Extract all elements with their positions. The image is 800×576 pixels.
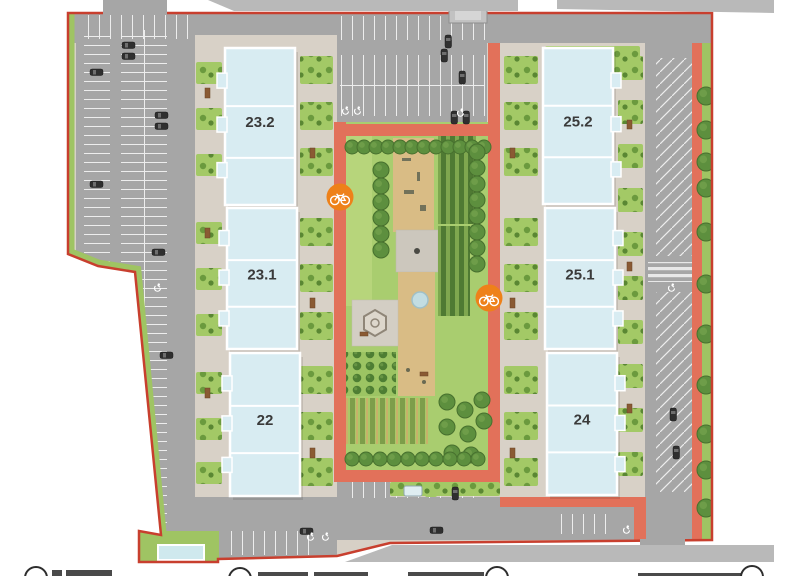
bench — [510, 298, 515, 308]
bush-patch — [300, 102, 333, 130]
parked-car — [90, 69, 103, 76]
legend-text-clipped — [66, 570, 112, 576]
bench — [310, 148, 315, 158]
tree-icon — [359, 452, 373, 466]
tree-icon — [469, 240, 485, 256]
tree-icon — [469, 144, 485, 160]
site-plan-canvas: 23.223.12225.225.124 — [0, 0, 800, 576]
building-entrance — [613, 270, 623, 285]
bench — [420, 372, 428, 376]
fitness-equipment — [422, 380, 426, 384]
building-entrance — [615, 376, 625, 391]
parked-car — [430, 527, 443, 534]
building-label: 23.1 — [247, 266, 276, 283]
building-entrance — [219, 311, 229, 326]
bush-patch — [196, 314, 222, 336]
park-left-lawn-strip — [346, 136, 372, 306]
parked-car — [155, 112, 168, 119]
building-entrance — [613, 311, 623, 326]
tree-icon — [469, 192, 485, 208]
bench — [205, 388, 210, 398]
tree-icon — [373, 210, 389, 226]
tree-icon — [469, 176, 485, 192]
tree-icon — [457, 452, 471, 466]
bush-patch — [300, 218, 333, 246]
vegetable-garden — [346, 398, 428, 444]
parked-car — [673, 446, 680, 459]
bush-patch — [504, 366, 538, 394]
parked-car — [451, 111, 458, 124]
tree-icon — [373, 226, 389, 242]
bush-patch — [300, 148, 333, 176]
bus-shelter — [404, 486, 422, 496]
bush-patch — [196, 462, 222, 484]
tree-icon — [476, 413, 492, 429]
building-label: 25.2 — [563, 113, 592, 130]
parked-car — [441, 49, 448, 62]
bush-patch — [196, 418, 222, 440]
park-path-west — [334, 122, 346, 482]
tree-icon — [469, 256, 485, 272]
bench — [627, 262, 632, 271]
bush-patch — [504, 102, 538, 130]
masterplan-svg: 23.223.12225.225.124 — [0, 0, 800, 576]
park-path-south — [334, 470, 500, 482]
bush-patch — [300, 366, 333, 394]
building-entrance — [613, 231, 623, 246]
building-entrance — [615, 415, 625, 430]
bush-patch — [504, 312, 538, 340]
tree-icon — [415, 452, 429, 466]
south-east-vertical-path — [634, 497, 646, 541]
bike-route-marker — [476, 285, 503, 312]
tree-icon — [469, 160, 485, 176]
legend-text-clipped — [314, 572, 368, 576]
bench — [510, 148, 515, 158]
bush-patch — [300, 264, 333, 292]
building-entrance — [219, 270, 229, 285]
crosswalk — [648, 262, 692, 282]
bush-patch — [504, 458, 538, 486]
tree-icon — [474, 392, 490, 408]
bush-patch — [300, 312, 333, 340]
parked-car — [463, 111, 470, 124]
parked-car — [122, 42, 135, 49]
bush-patch — [300, 412, 333, 440]
bench — [510, 448, 515, 458]
bush-patch — [196, 268, 222, 290]
tree-icon — [439, 394, 455, 410]
north-road-exit — [103, 0, 167, 15]
building-entrance — [611, 73, 621, 88]
building-entrance — [611, 117, 621, 132]
bench — [205, 228, 210, 238]
building-entrance — [615, 457, 625, 472]
tree-icon — [373, 242, 389, 258]
bush-patch — [504, 56, 538, 84]
parked-car — [160, 352, 173, 359]
outdoor-pool — [158, 545, 204, 560]
tree-icon — [373, 452, 387, 466]
parked-car — [670, 408, 677, 421]
outside-road-top-left — [208, 0, 518, 11]
parked-car — [445, 35, 452, 48]
orchard-grid — [346, 352, 396, 396]
building-22[interactable]: 22 — [222, 353, 303, 500]
plaza-sculpture — [414, 248, 420, 254]
bench — [627, 120, 632, 129]
bush-patch — [300, 56, 333, 84]
building-label: 23.2 — [245, 114, 274, 131]
tree-icon — [469, 224, 485, 240]
building-entrance — [222, 457, 232, 472]
bush-patch — [300, 458, 333, 486]
parked-car — [122, 53, 135, 60]
tree-icon — [460, 426, 476, 442]
park-central-path — [398, 272, 435, 396]
parked-car — [155, 123, 168, 130]
tree-icon — [469, 208, 485, 224]
building-entrance — [217, 163, 227, 178]
parked-car — [152, 249, 165, 256]
bench — [310, 448, 315, 458]
site-interior: 23.223.12225.225.124 — [68, 13, 715, 562]
building-label: 25.1 — [565, 266, 594, 283]
bush-patch — [504, 148, 538, 176]
tree-icon — [471, 452, 485, 466]
building-entrance — [222, 416, 232, 431]
building-25.1[interactable]: 25.1 — [545, 208, 623, 353]
legend-text-clipped — [408, 572, 484, 576]
building-entrance — [611, 162, 621, 177]
bush-patch — [618, 188, 643, 212]
tree-icon — [345, 452, 359, 466]
tree-icon — [373, 178, 389, 194]
tree-icon — [401, 452, 415, 466]
building-entrance — [222, 376, 232, 391]
bike-route-marker — [327, 184, 354, 211]
tree-icon — [373, 194, 389, 210]
tree-icon — [457, 402, 473, 418]
legend-text-clipped — [52, 570, 62, 576]
building-entrance — [217, 73, 227, 88]
shelter-bush — [425, 486, 437, 497]
tree-icon — [387, 452, 401, 466]
bench — [360, 332, 368, 336]
crop-field-south — [438, 226, 470, 316]
outside-road-bottom — [345, 545, 774, 562]
building-25.2[interactable]: 25.2 — [543, 48, 621, 208]
bush-patch — [504, 412, 538, 440]
parked-car — [90, 181, 103, 188]
tree-icon — [429, 452, 443, 466]
building-23.1[interactable]: 23.1 — [219, 208, 300, 353]
bench — [205, 88, 210, 98]
park-path-north — [334, 124, 500, 136]
building-entrance — [217, 117, 227, 132]
fitness-equipment — [406, 368, 410, 372]
building-label: 24 — [574, 412, 591, 429]
building-label: 22 — [257, 412, 274, 429]
building-entrance — [219, 231, 229, 246]
legend-text-clipped — [258, 572, 308, 576]
bush-patch — [504, 218, 538, 246]
bench — [310, 298, 315, 308]
building-23.2[interactable]: 23.2 — [217, 48, 298, 209]
tree-icon — [439, 419, 455, 435]
building-24[interactable]: 24 — [547, 353, 625, 499]
tree-icon — [443, 452, 457, 466]
tree-icon — [373, 162, 389, 178]
park-pond — [412, 292, 428, 308]
parked-car — [452, 487, 459, 500]
bush-patch — [504, 264, 538, 292]
parked-car — [459, 71, 466, 84]
bench — [627, 404, 632, 413]
